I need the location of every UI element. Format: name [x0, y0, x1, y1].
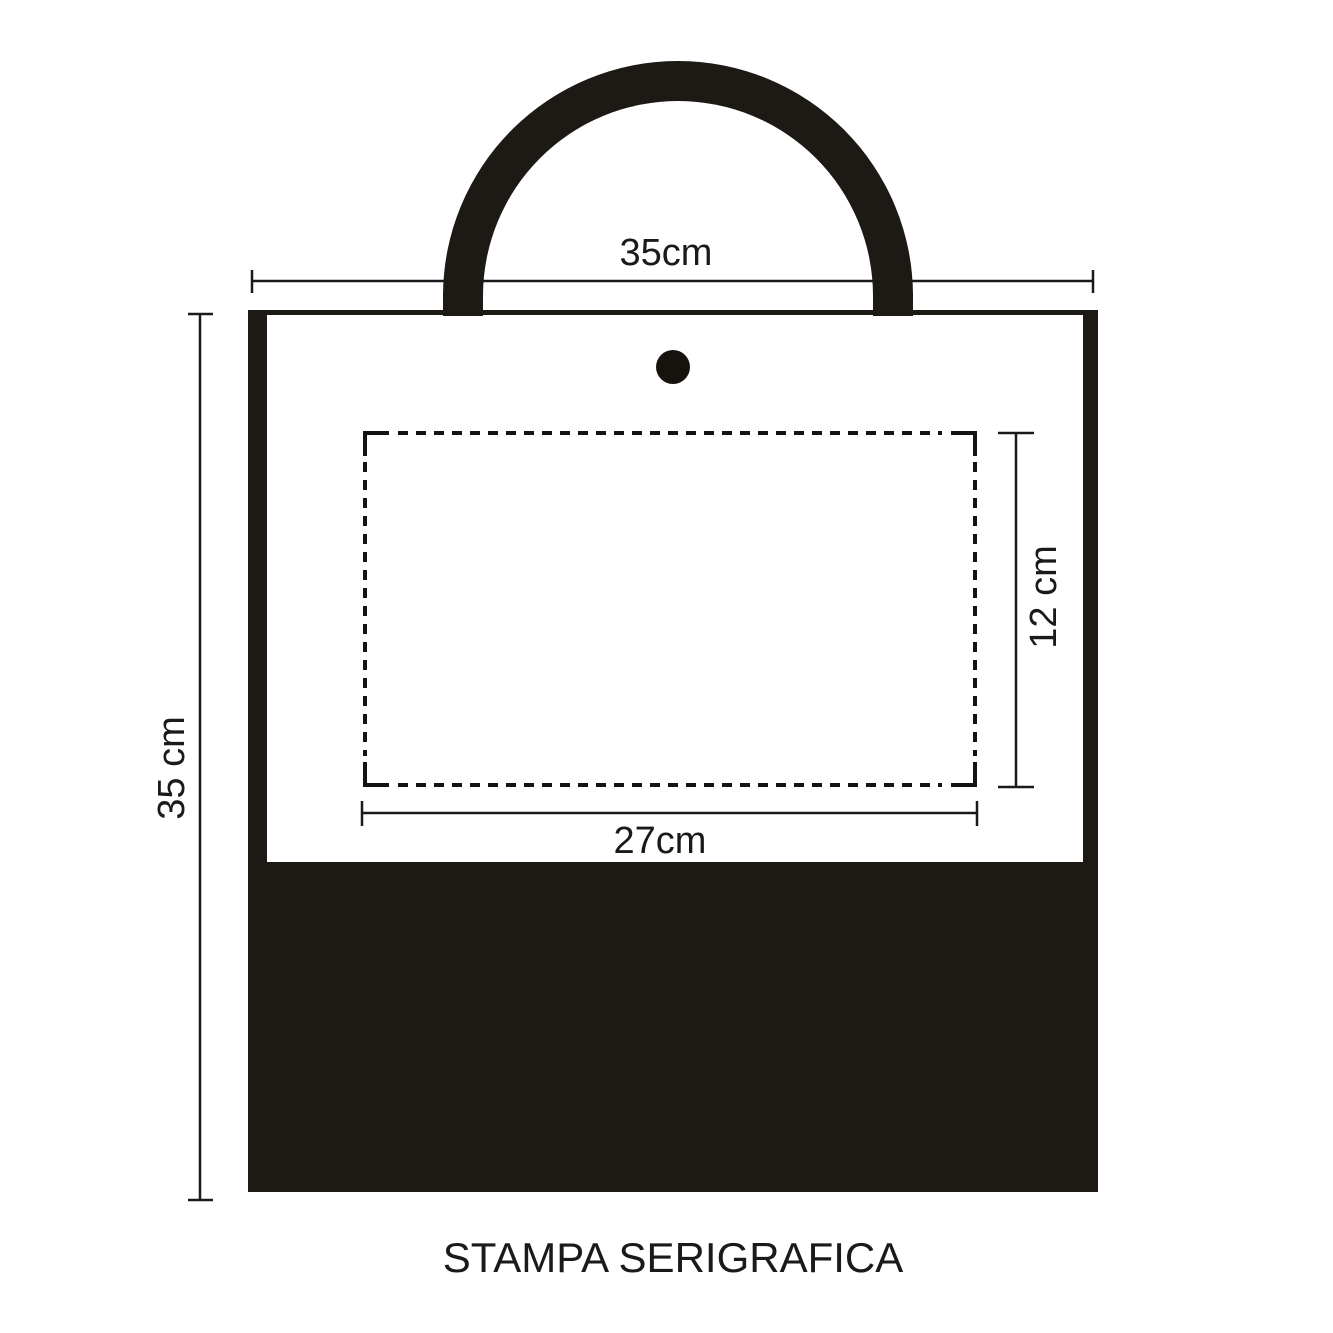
print-height-label: 12 cm [1025, 545, 1063, 648]
diagram-title: STAMPA SERIGRAFICA [443, 1237, 904, 1279]
bag-width-label: 35cm [620, 234, 713, 272]
print-width-label: 27cm [614, 822, 707, 860]
spec-diagram: 35cm 35 cm 12 cm 27cm STAMPA SERIGRAFICA [0, 0, 1333, 1333]
handle-strap-right [873, 292, 913, 316]
snap-button-icon [656, 350, 690, 384]
handle-strap-left [443, 292, 483, 316]
bag-height-label: 35 cm [153, 716, 191, 819]
bag-bottom-panel [248, 862, 1098, 1192]
bag-body [248, 310, 1098, 1192]
